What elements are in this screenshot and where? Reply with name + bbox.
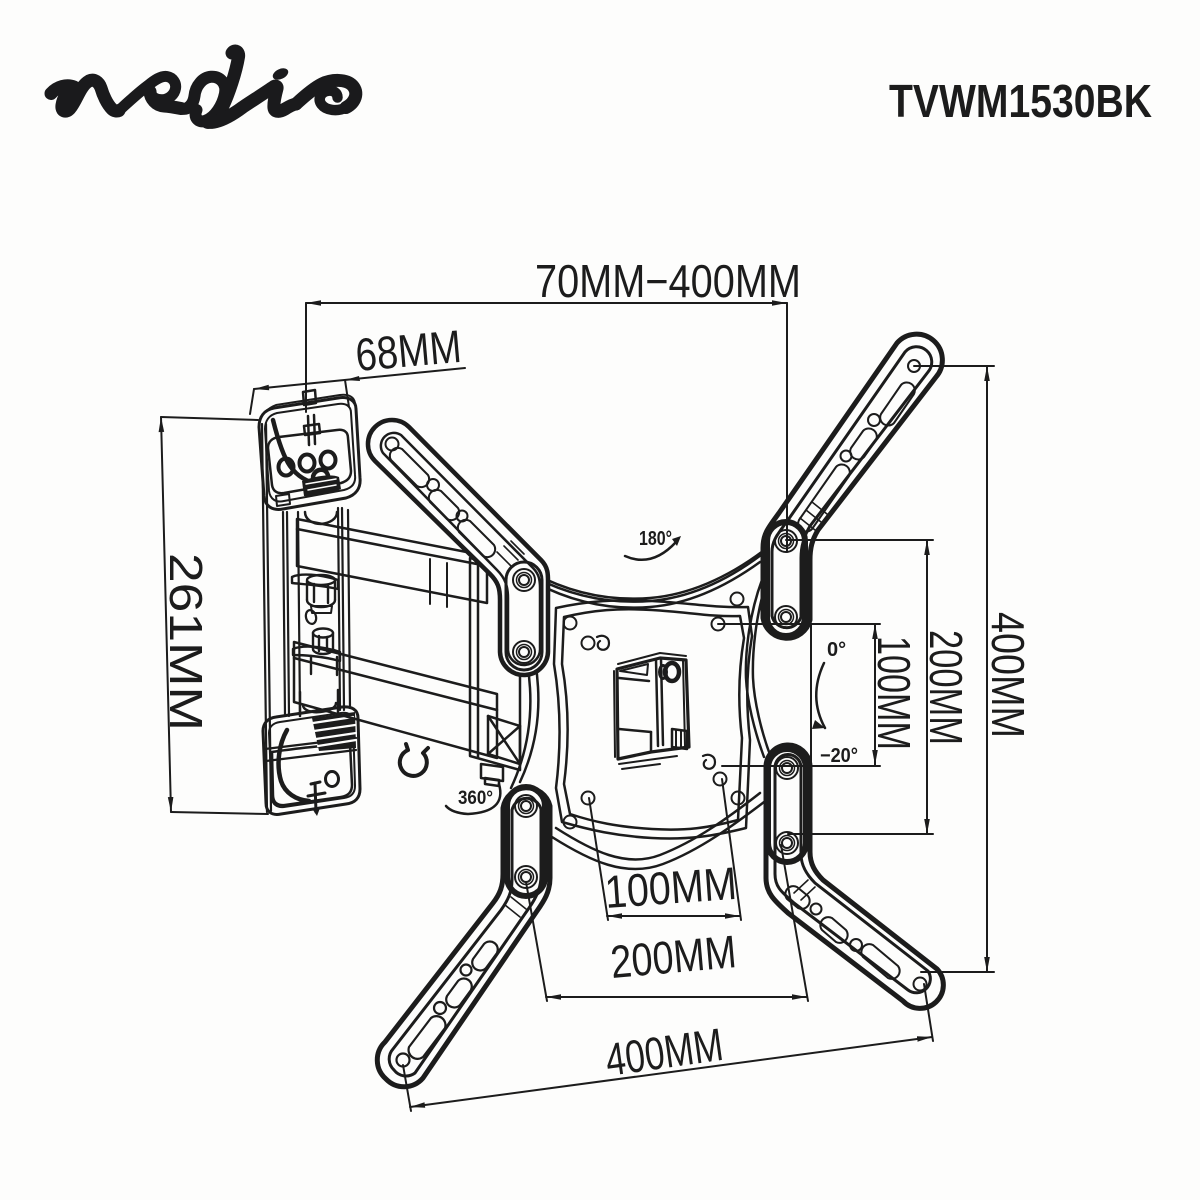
svg-text:400MM: 400MM <box>982 612 1034 738</box>
svg-text:0°: 0° <box>827 639 846 661</box>
svg-text:−20°: −20° <box>820 745 858 767</box>
svg-text:68MM: 68MM <box>353 320 463 381</box>
svg-text:400MM: 400MM <box>602 1018 726 1086</box>
svg-text:TVWM1530BK: TVWM1530BK <box>889 75 1152 127</box>
svg-text:180°: 180° <box>639 527 672 550</box>
svg-text:100MM: 100MM <box>603 857 738 918</box>
svg-text:70MM−400MM: 70MM−400MM <box>535 255 801 307</box>
svg-text:200MM: 200MM <box>608 925 738 988</box>
svg-text:360°: 360° <box>458 787 493 809</box>
